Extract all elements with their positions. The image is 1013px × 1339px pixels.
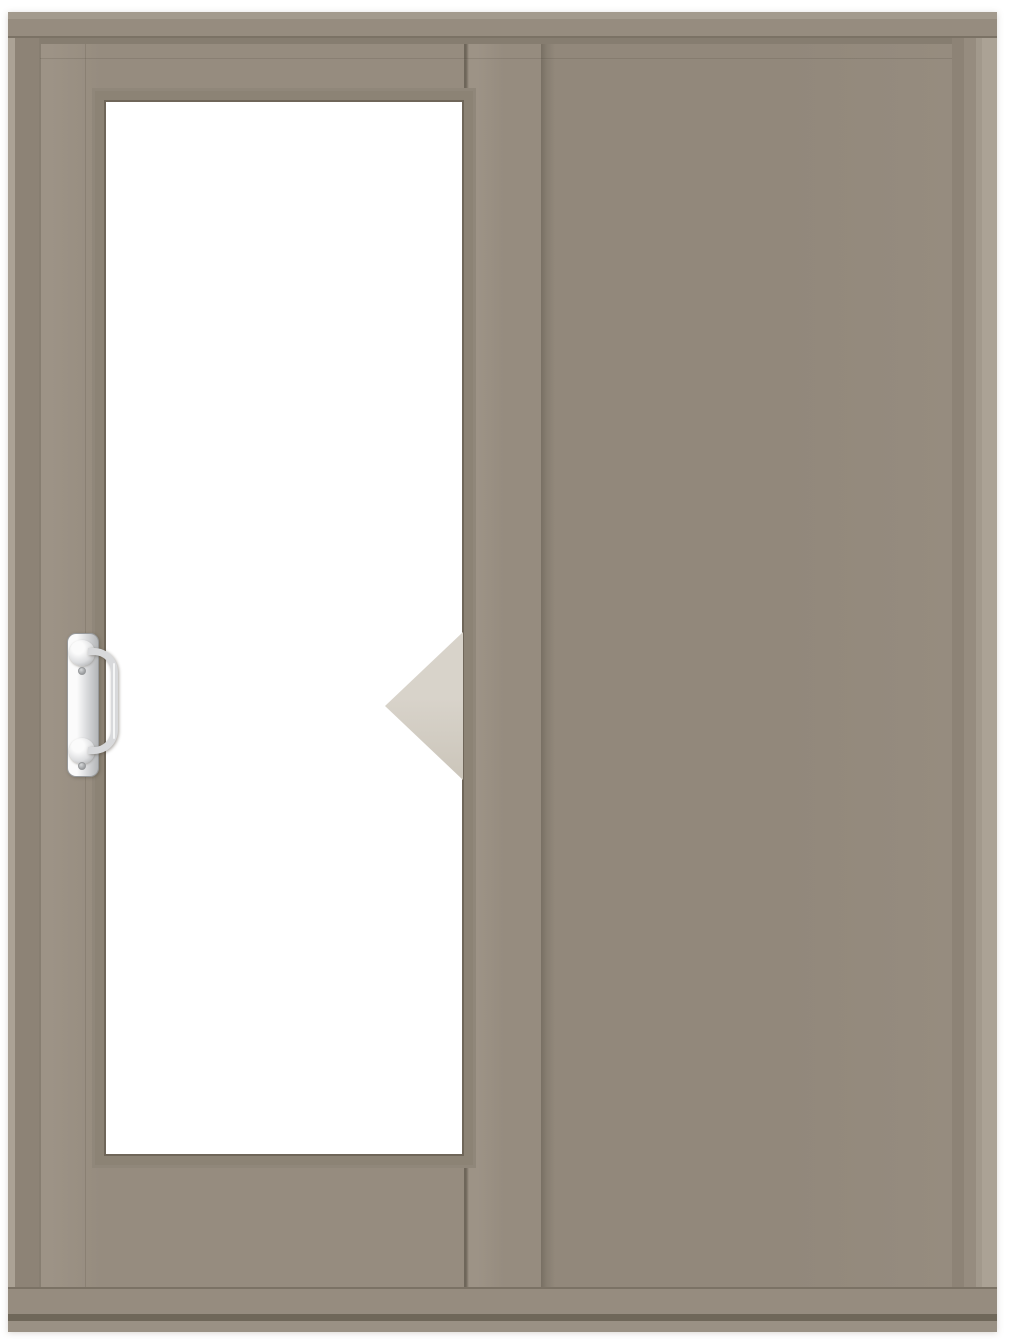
meeting-stile [464, 44, 541, 1287]
frame-head [8, 12, 997, 38]
frame-jamb-left [8, 12, 40, 1332]
door-unit [8, 12, 997, 1332]
operating-panel-glass [104, 100, 464, 1156]
handle-screw-bottom [78, 762, 86, 770]
handle-screw-top [78, 667, 86, 675]
fixed-panel-right [537, 44, 952, 1287]
handle-pull-grip [88, 648, 118, 754]
product-image-sliding-patio-door [0, 0, 1013, 1339]
top-rail-bevel-line [40, 58, 952, 60]
frame-sill [8, 1287, 997, 1332]
